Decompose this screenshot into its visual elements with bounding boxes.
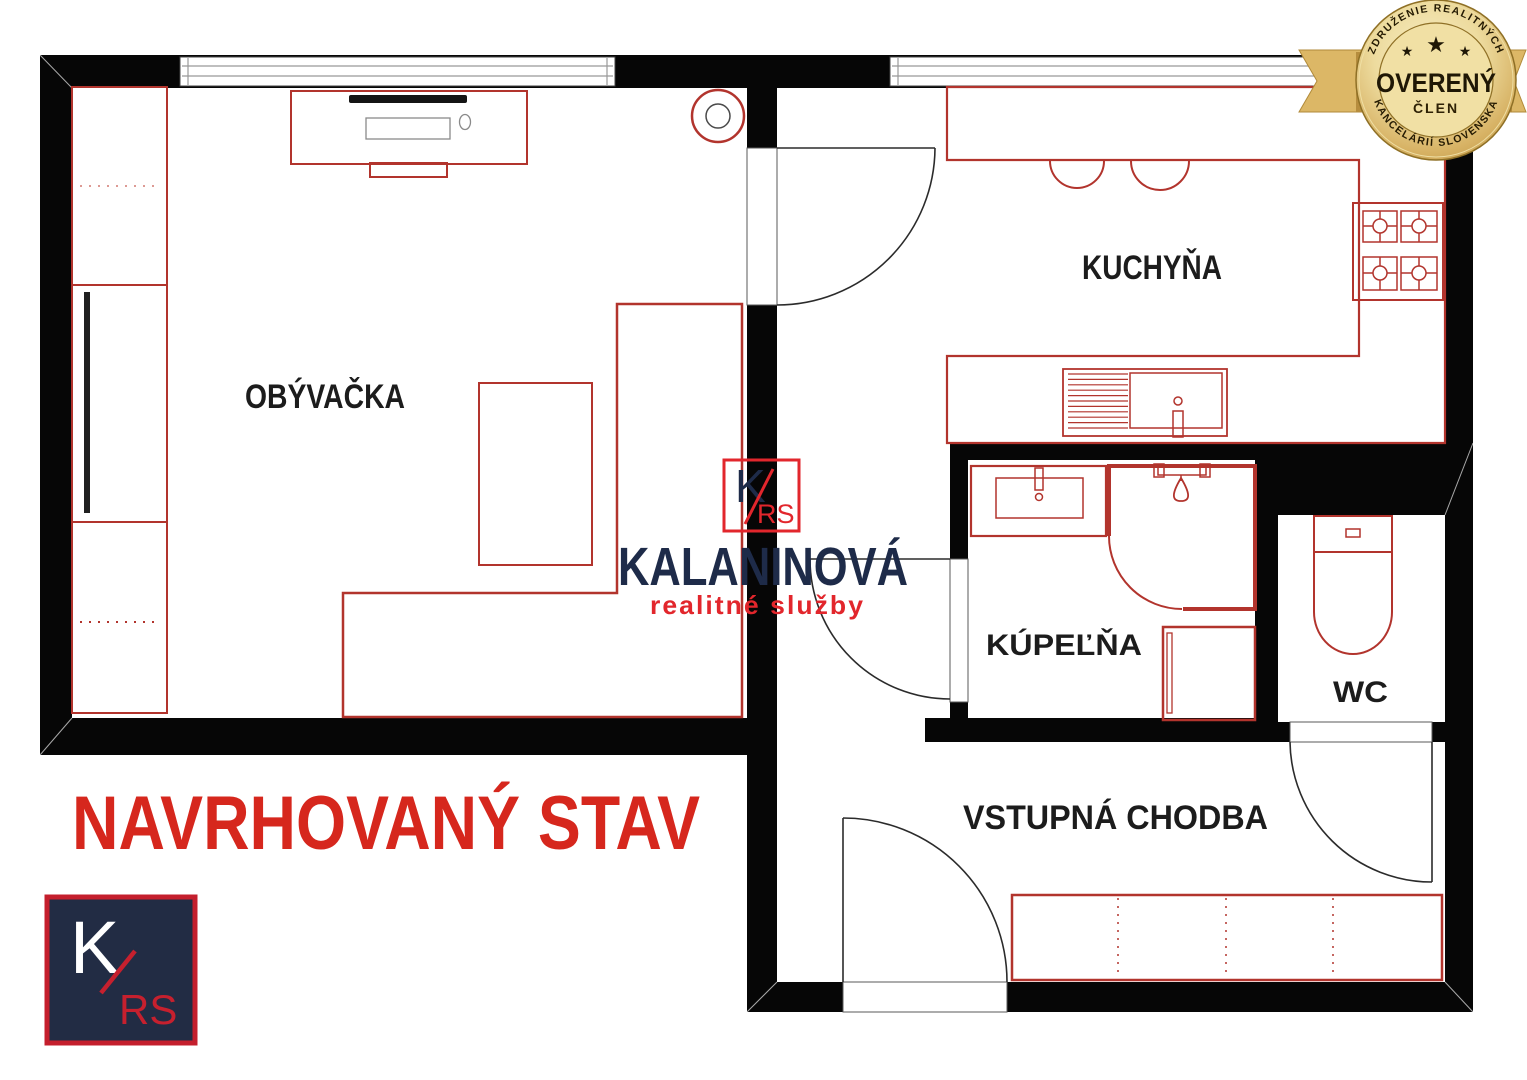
monitor bbox=[349, 95, 467, 103]
brand-tagline: realitné služby bbox=[650, 590, 865, 620]
wall-right bbox=[1445, 55, 1473, 1012]
wall-bathroom-top bbox=[950, 443, 1278, 460]
badge-main-text: OVERENÝ bbox=[1376, 67, 1496, 98]
title-proposed-state: NAVRHOVANÝ STAV bbox=[72, 781, 700, 866]
wall-left bbox=[40, 55, 72, 755]
brand-monogram-rs: RS bbox=[757, 499, 795, 529]
badge-member-text: ČLEN bbox=[1413, 99, 1459, 116]
wall-bathroom-bottom bbox=[925, 718, 1278, 742]
door-opening-livingroom bbox=[747, 148, 777, 305]
room-label-bathroom: KÚPEĽŇA bbox=[986, 628, 1142, 662]
room-label-living-room: OBÝVAČKA bbox=[245, 377, 405, 416]
badge-star-icon: ★ bbox=[1401, 43, 1414, 59]
wall-livingroom-bottom bbox=[40, 718, 777, 755]
door-opening-entrance bbox=[843, 982, 1007, 1012]
agency-logo-rs: RS bbox=[119, 986, 177, 1033]
room-label-hallway: VSTUPNÁ CHODBA bbox=[963, 799, 1268, 837]
badge-star-icon: ★ bbox=[1426, 32, 1446, 57]
badge-star-icon: ★ bbox=[1459, 43, 1472, 59]
room-label-kitchen: KUCHYŇA bbox=[1082, 249, 1222, 287]
wall-wc-top bbox=[1258, 443, 1445, 515]
floor-plan: OBÝVAČKA KUCHYŇA KÚPEĽŇA WC VSTUPNÁ CHOD… bbox=[0, 0, 1527, 1080]
door-opening-bathroom bbox=[950, 559, 968, 702]
window-living-room bbox=[180, 57, 615, 86]
window-kitchen bbox=[890, 57, 1330, 86]
door-opening-wc bbox=[1290, 722, 1432, 742]
room-label-wc: WC bbox=[1333, 676, 1388, 709]
brand-name: KALANINOVÁ bbox=[618, 537, 908, 597]
wardrobe-mirror bbox=[84, 292, 90, 513]
agency-logo: K RS bbox=[47, 897, 195, 1043]
